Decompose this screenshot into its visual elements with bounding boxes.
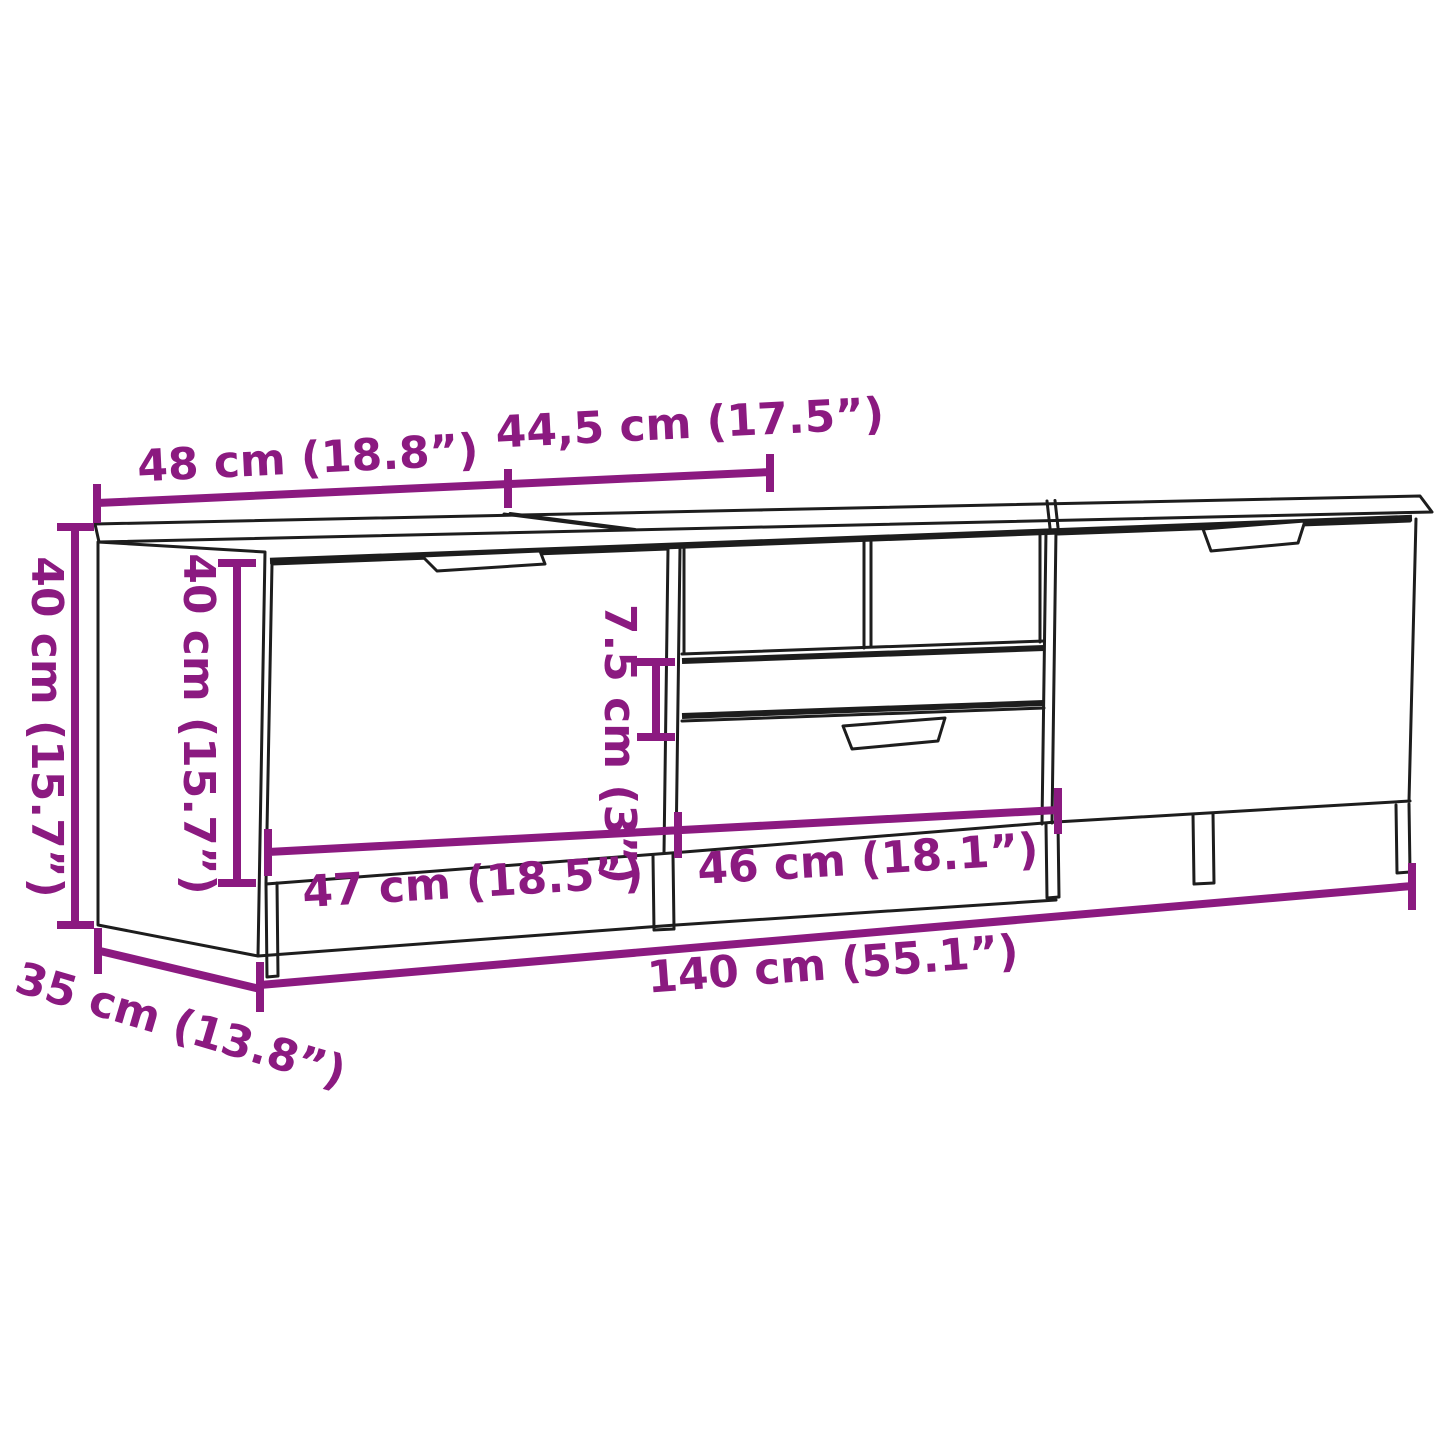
label-depth: 35 cm (13.8”) (10, 953, 352, 1099)
open-shelf (684, 534, 1040, 653)
label-overall-height: 40 cm (15.7”) (21, 556, 72, 898)
label-middle-compartment-width: 46 cm (18.1”) (696, 824, 1040, 895)
label-door-height: 40 cm (15.7”) (173, 553, 224, 895)
right-end-leg (1396, 804, 1410, 873)
label-drawer-height: 7.5 cm (3”) (594, 604, 645, 884)
diagram-canvas: 48 cm (18.8”) 44,5 cm (17.5”) 40 cm (15.… (0, 0, 1445, 1445)
middle-left-leg (653, 855, 674, 930)
drawer-2-handle (843, 718, 945, 749)
label-top-middle-width: 44,5 cm (17.5”) (494, 389, 885, 459)
label-top-left-width: 48 cm (18.8”) (136, 425, 480, 493)
shelf-shadow-line (682, 648, 1044, 661)
right-door (1058, 519, 1416, 801)
label-left-compartment-width: 47 cm (18.5”) (301, 847, 645, 918)
shelf-center-divider (864, 538, 871, 648)
dimension-diagram: 48 cm (18.8”) 44,5 cm (17.5”) 40 cm (15.… (0, 0, 1445, 1445)
middle-right-leg (1046, 823, 1059, 898)
front-left-leg (266, 883, 278, 977)
middle-right-divider (1042, 530, 1056, 824)
right-inner-leg (1193, 813, 1214, 884)
left-door-handle (422, 551, 545, 571)
left-middle-divider (676, 548, 680, 852)
